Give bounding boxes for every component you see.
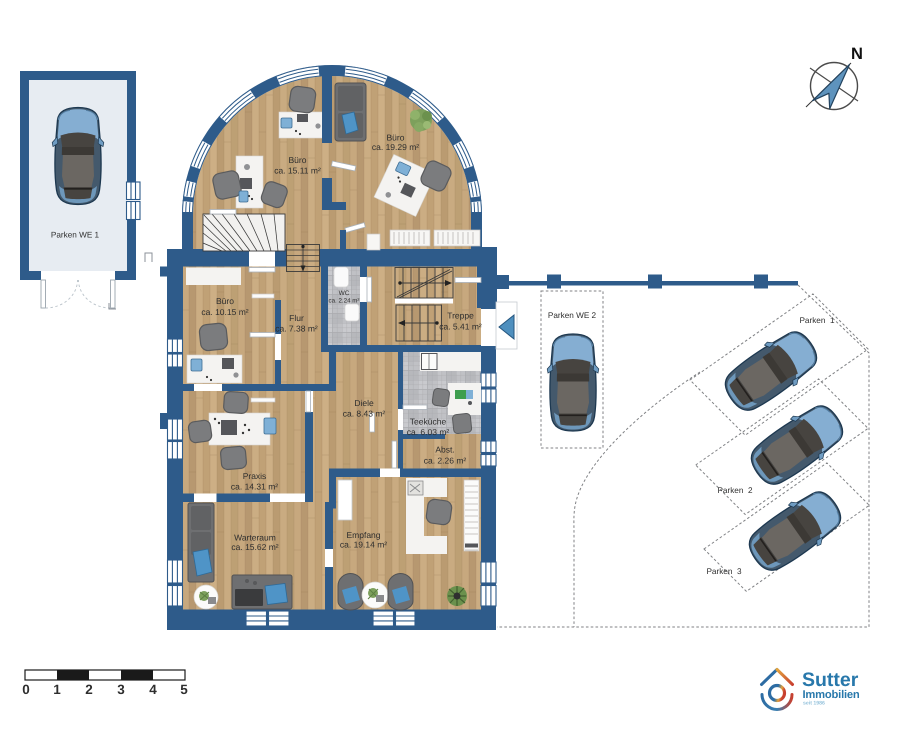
svg-text:Parken 3: Parken 3	[706, 567, 741, 576]
svg-text:ca. 19.29 m²: ca. 19.29 m²	[372, 142, 419, 152]
svg-text:Immobilien: Immobilien	[803, 689, 860, 701]
svg-text:Parken 1: Parken 1	[799, 316, 834, 325]
svg-text:Parken WE 1: Parken WE 1	[51, 231, 100, 240]
svg-text:ca. 7.38 m²: ca. 7.38 m²	[275, 324, 318, 334]
svg-text:Büro: Büro	[387, 133, 405, 143]
svg-text:1: 1	[53, 682, 61, 697]
svg-text:0: 0	[22, 682, 30, 697]
svg-text:Abst.: Abst.	[435, 445, 454, 455]
svg-text:2: 2	[85, 682, 93, 697]
svg-text:ca. 14.31 m²: ca. 14.31 m²	[231, 482, 278, 492]
svg-text:seit 1986: seit 1986	[803, 701, 825, 707]
svg-text:WC: WC	[339, 290, 350, 297]
svg-text:Sutter: Sutter	[802, 669, 859, 691]
svg-text:Parken WE 2: Parken WE 2	[548, 311, 597, 320]
svg-text:Diele: Diele	[354, 398, 374, 408]
svg-text:3: 3	[117, 682, 125, 697]
svg-text:Parken 2: Parken 2	[717, 486, 752, 495]
svg-text:Warteraum: Warteraum	[234, 533, 276, 543]
svg-text:ca. 19.14 m²: ca. 19.14 m²	[340, 540, 387, 550]
svg-text:Büro: Büro	[216, 296, 234, 306]
svg-text:ca. 2.24 m²: ca. 2.24 m²	[329, 298, 360, 305]
svg-text:4: 4	[149, 682, 157, 697]
svg-text:ca. 10.15 m²: ca. 10.15 m²	[201, 307, 248, 317]
svg-text:Empfang: Empfang	[346, 530, 380, 540]
svg-text:ca. 6.03 m²: ca. 6.03 m²	[407, 427, 450, 437]
svg-text:5: 5	[180, 682, 188, 697]
svg-text:ca. 2.26 m²: ca. 2.26 m²	[424, 456, 467, 466]
svg-text:Praxis: Praxis	[243, 471, 267, 481]
svg-text:Flur: Flur	[289, 313, 304, 323]
svg-text:ca. 8.43 m²: ca. 8.43 m²	[343, 409, 386, 419]
svg-text:ca. 15.62 m²: ca. 15.62 m²	[231, 542, 278, 552]
svg-text:ca. 15.11 m²: ca. 15.11 m²	[274, 166, 321, 176]
svg-text:Büro: Büro	[289, 155, 307, 165]
svg-text:Treppe: Treppe	[447, 311, 474, 321]
svg-text:N: N	[851, 45, 863, 63]
svg-text:ca. 5.41 m²: ca. 5.41 m²	[439, 322, 482, 332]
svg-text:Teeküche: Teeküche	[410, 417, 447, 427]
